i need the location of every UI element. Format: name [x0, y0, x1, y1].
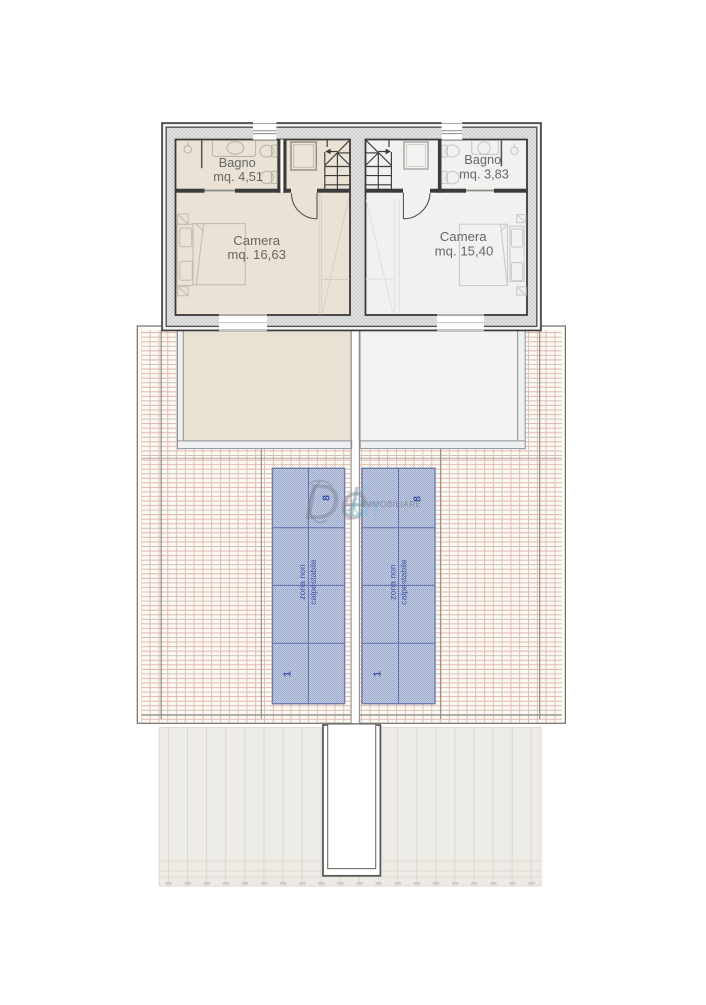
svg-text:zona non: zona non [388, 564, 398, 600]
svg-text:mq. 3,83: mq. 3,83 [459, 167, 509, 182]
svg-text:mq. 16,63: mq. 16,63 [227, 247, 286, 262]
svg-text:IMMOBILIARE: IMMOBILIARE [362, 500, 421, 509]
svg-text:calpestabile: calpestabile [399, 559, 409, 605]
svg-text:1: 1 [281, 671, 293, 677]
svg-text:Bagno: Bagno [219, 155, 256, 170]
svg-text:mq. 4,51: mq. 4,51 [213, 169, 263, 184]
svg-text:calpestabile: calpestabile [308, 559, 318, 605]
svg-text:1: 1 [372, 671, 384, 677]
svg-text:Bagno: Bagno [464, 152, 501, 167]
svg-text:zona non: zona non [297, 564, 307, 600]
svg-text:Camera: Camera [233, 233, 281, 248]
svg-text:Camera: Camera [440, 229, 488, 244]
svg-text:mq. 15,40: mq. 15,40 [435, 244, 494, 259]
